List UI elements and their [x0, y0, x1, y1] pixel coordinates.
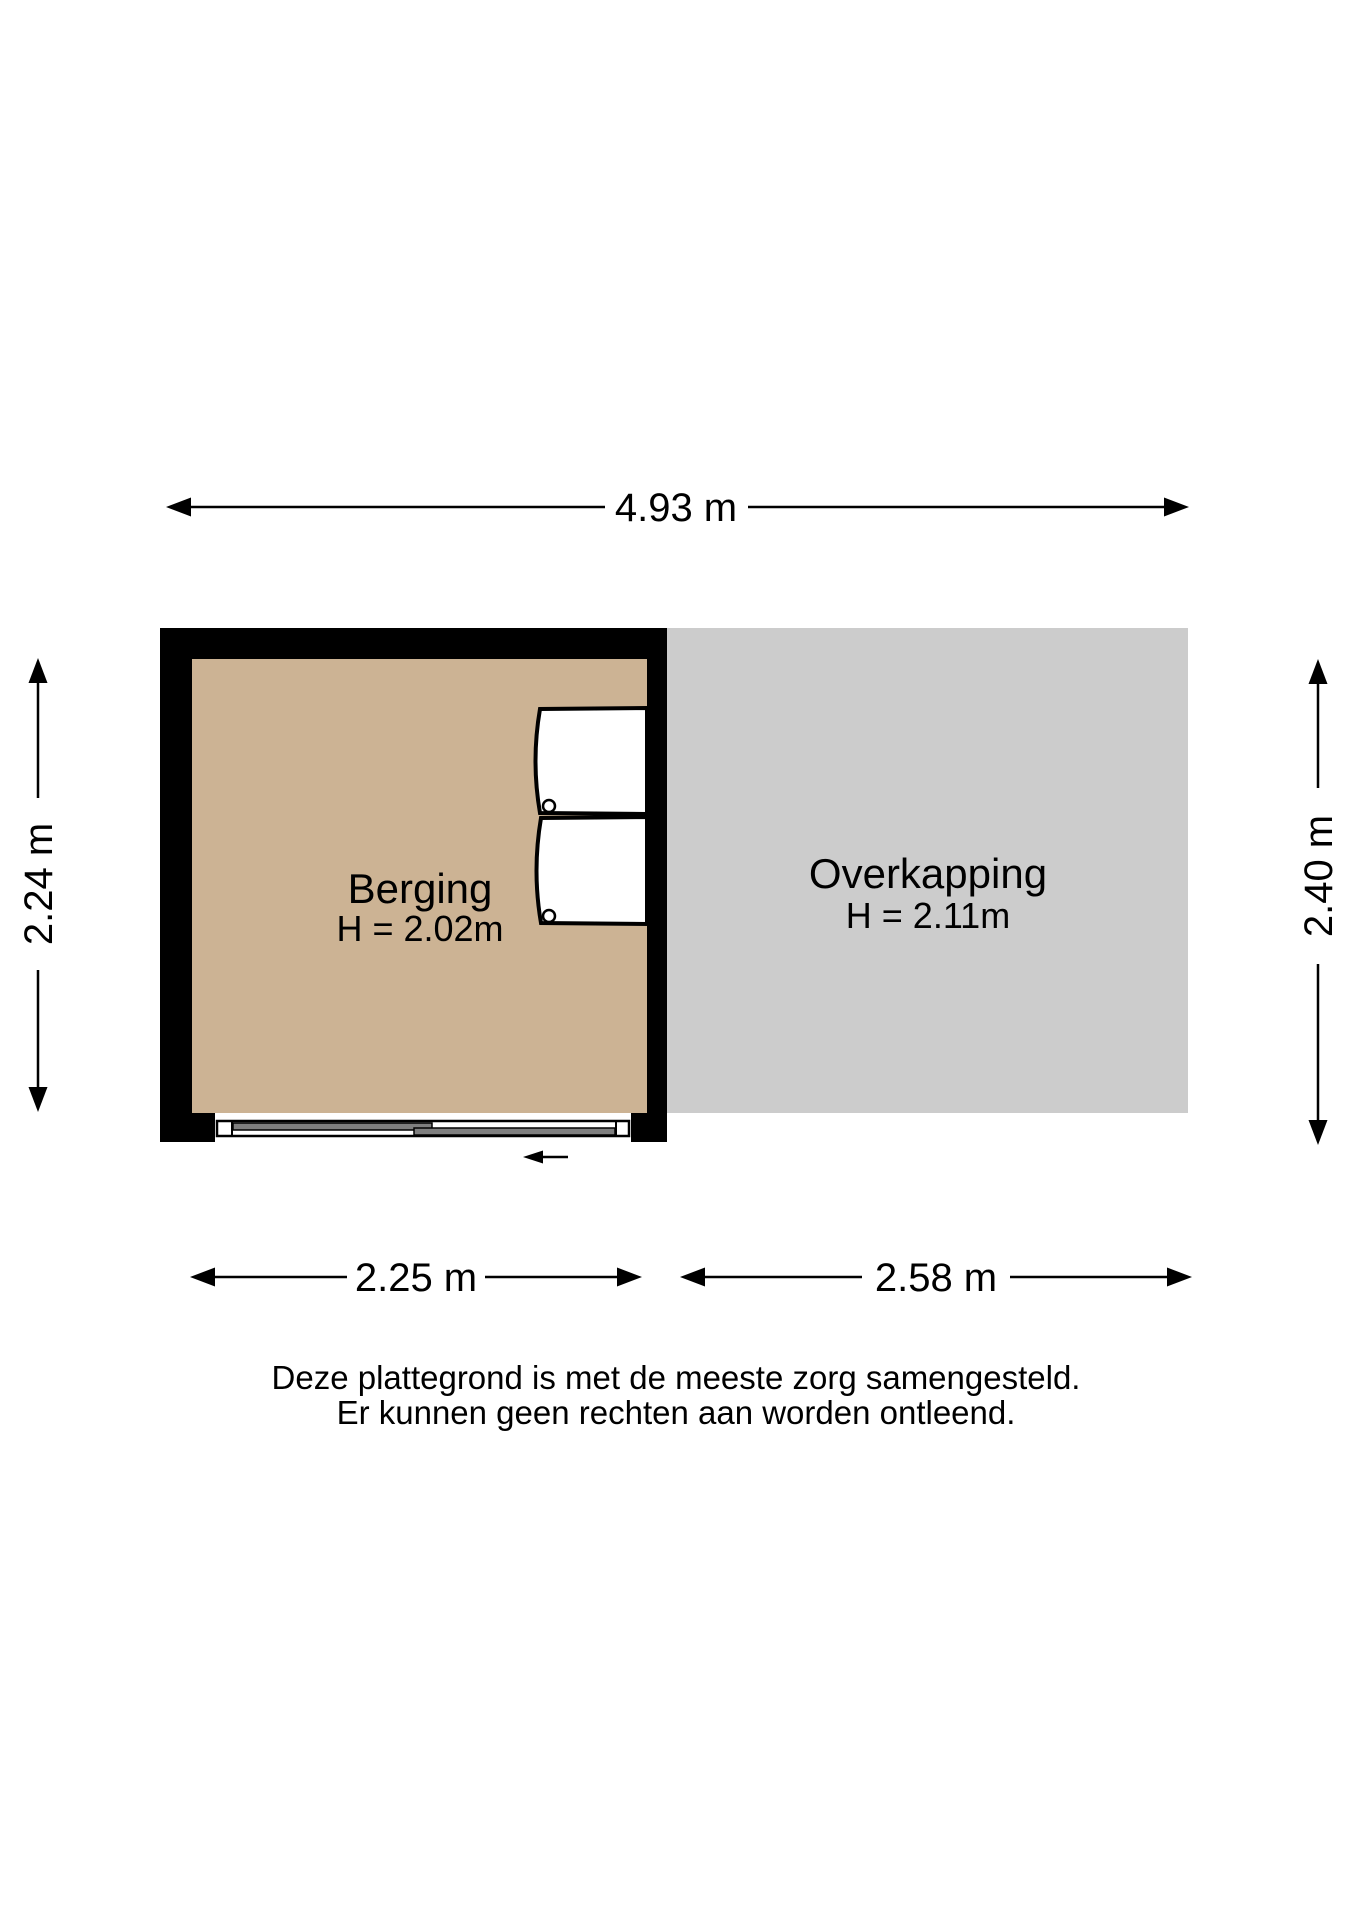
dimension-bottom-left: 2.25 m — [190, 1256, 642, 1300]
berging-height-label: H = 2.02m — [336, 908, 503, 949]
door-hinge-top-icon — [543, 800, 555, 812]
dimension-top-label: 4.93 m — [615, 486, 737, 530]
arrowhead-down-icon — [1309, 1120, 1328, 1145]
overkapping-area: Overkapping H = 2.11m — [667, 628, 1188, 1113]
door-leaves — [536, 708, 648, 924]
dimension-bottom-left-label: 2.25 m — [355, 1256, 477, 1300]
dimension-bottom-right-label: 2.58 m — [875, 1256, 997, 1300]
arrowhead-right-icon — [1164, 498, 1189, 517]
arrowhead-right-icon — [617, 1268, 642, 1287]
door-hinge-bottom-icon — [543, 910, 555, 922]
berging-label: Berging — [348, 865, 493, 912]
disclaimer-line-2: Er kunnen geen rechten aan worden ontlee… — [337, 1394, 1016, 1431]
floorplan-canvas: 4.93 m 2.24 m 2.40 m Overkapping H = 2.1… — [0, 0, 1358, 1920]
dimension-right: 2.40 m — [1297, 659, 1341, 1145]
dimension-left: 2.24 m — [17, 658, 61, 1112]
sliding-panel-left — [233, 1123, 432, 1130]
overkapping-height-label: H = 2.11m — [846, 895, 1010, 936]
dimension-bottom-right: 2.58 m — [680, 1256, 1192, 1300]
dimension-top: 4.93 m — [166, 486, 1189, 530]
dimension-left-label: 2.24 m — [17, 823, 61, 945]
arrowhead-left-icon — [166, 498, 191, 517]
arrowhead-right-icon — [1167, 1268, 1192, 1287]
arrowhead-left-icon — [680, 1268, 705, 1287]
door-leaf-top — [536, 708, 648, 814]
arrowhead-left-icon — [190, 1268, 215, 1287]
door-leaf-bottom — [537, 817, 648, 924]
disclaimer-line-1: Deze plattegrond is met de meeste zorg s… — [272, 1359, 1081, 1396]
overkapping-label: Overkapping — [809, 850, 1047, 897]
arrowhead-up-icon — [1309, 659, 1328, 684]
floorplan-page: 4.93 m 2.24 m 2.40 m Overkapping H = 2.1… — [0, 0, 1358, 1920]
arrowhead-down-icon — [29, 1087, 48, 1112]
slide-direction-left-arrow-icon — [523, 1151, 568, 1164]
disclaimer-text: Deze plattegrond is met de meeste zorg s… — [272, 1359, 1081, 1431]
sliding-panel-right — [414, 1128, 615, 1135]
arrowhead-up-icon — [29, 658, 48, 683]
dimension-right-label: 2.40 m — [1297, 815, 1341, 937]
sliding-door — [215, 1113, 631, 1164]
